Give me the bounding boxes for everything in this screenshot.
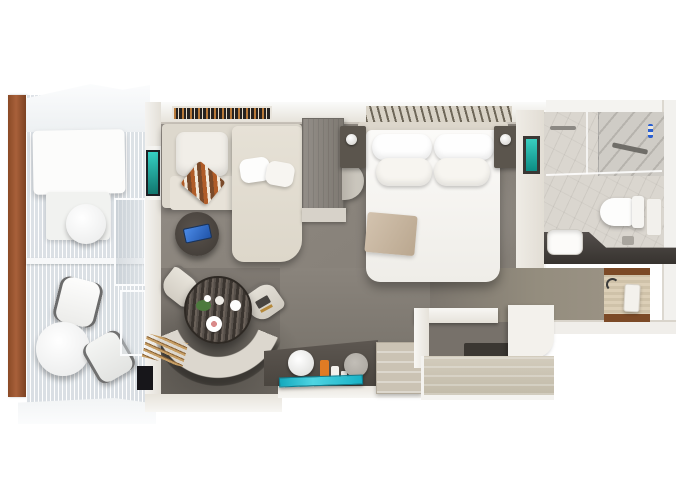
bedside-lamp: [500, 134, 511, 145]
headboard-slat-wall: [366, 106, 512, 122]
bed-pillow: [434, 134, 494, 160]
decor-tray: [344, 353, 368, 377]
table-dish: [215, 296, 224, 305]
balcony-side-table: [66, 204, 106, 244]
shower-glass-panel: [586, 112, 588, 174]
bathroom-wall-unit: [646, 198, 662, 236]
bottom-wall-corridor: [554, 320, 676, 334]
entry-threshold: [604, 268, 650, 275]
balcony-roof-overhang: [26, 84, 150, 132]
shower-controls: [648, 124, 653, 138]
door-swing-mark: [606, 278, 619, 291]
closet-wall-rounded: [508, 305, 554, 358]
tv-screen: [146, 150, 160, 196]
walk-in-shower: [598, 112, 664, 176]
bottom-wall-living: [145, 394, 282, 412]
table-plate: [206, 316, 222, 332]
desk-lamp: [288, 350, 314, 376]
bedroom-bathroom-wall: [516, 110, 546, 268]
towel-bar: [550, 126, 576, 130]
bed-throw-blanket: [364, 212, 417, 256]
bookshelf: [172, 106, 272, 121]
right-outer-wall: [662, 100, 676, 334]
bedside-lamp: [346, 134, 357, 145]
sliding-glass-door: [114, 198, 146, 286]
balcony-wood-rail: [8, 95, 26, 397]
bed-pillow: [376, 158, 432, 186]
balcony-bottom-edge: [18, 398, 156, 424]
toilet: [600, 198, 634, 226]
toilet-flush: [622, 236, 634, 245]
balcony-lounger: [32, 129, 125, 195]
bathroom-sink: [547, 229, 583, 255]
toilet-tank: [632, 196, 644, 228]
media-cabinet: [302, 118, 344, 210]
entry-threshold: [604, 314, 650, 322]
cabinet-shelf: [302, 208, 346, 222]
chaise-pillow: [264, 160, 296, 188]
table-flower: [204, 295, 211, 302]
table-cup: [230, 300, 241, 311]
teal-wall-art: [523, 136, 540, 174]
balcony-cafe-table: [36, 322, 90, 376]
suite-floorplan: [0, 0, 680, 486]
nightstand-left: [340, 126, 366, 168]
minibar-box: [137, 366, 153, 390]
chaise-lounge: [232, 126, 302, 262]
round-dining-table: [184, 276, 252, 344]
closet-storage-cabinet: [421, 356, 554, 400]
bed-pillow: [372, 134, 432, 160]
entry-door: [623, 284, 640, 313]
sliding-glass-door-panel: [120, 290, 146, 356]
bed-pillow: [434, 158, 490, 186]
